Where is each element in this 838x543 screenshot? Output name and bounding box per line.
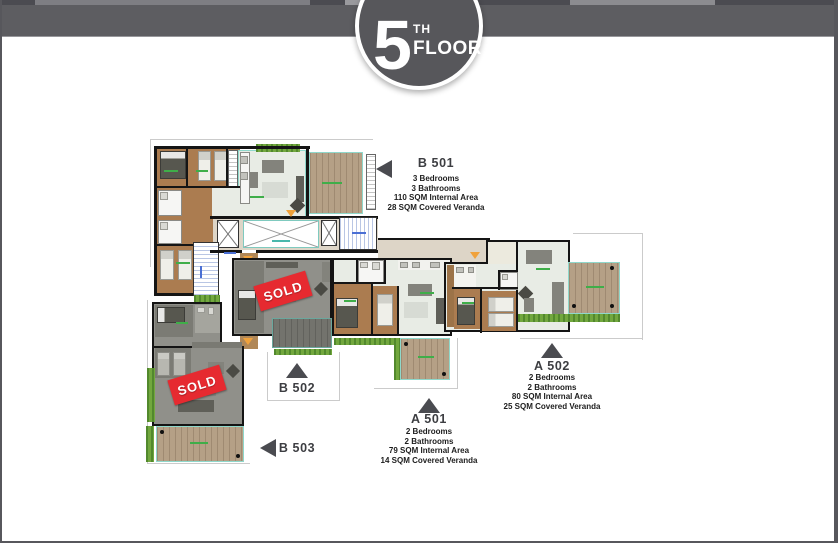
appliance	[456, 267, 464, 273]
unit-b502-veranda	[272, 318, 332, 348]
page-left-edge	[0, 0, 2, 543]
unit-label-a501: A 501	[389, 412, 469, 426]
unit-label-a502: A 502	[512, 359, 592, 373]
arrow-up-icon	[541, 343, 563, 358]
dining-table	[526, 250, 552, 264]
single-bed	[377, 294, 393, 326]
stair-label-mark	[352, 232, 366, 234]
detail-line: 110 SQM Internal Area	[376, 193, 496, 203]
appliance	[468, 267, 474, 273]
wall	[498, 270, 500, 290]
single-bed	[173, 352, 186, 376]
detail-line: 2 Bathrooms	[492, 383, 612, 393]
entry-door-marker	[286, 210, 296, 217]
floor-word: FLOOR	[413, 38, 482, 60]
parapet-outline	[374, 388, 458, 389]
entry-door-marker	[470, 252, 480, 259]
parapet-outline	[573, 233, 643, 234]
wall	[154, 146, 310, 149]
unit-details-a501: 2 Bedrooms 2 Bathrooms 79 SQM Internal A…	[369, 427, 489, 465]
dimension-mark	[176, 322, 188, 324]
unit-label-b502: B 502	[257, 381, 337, 395]
single-bed	[178, 250, 192, 280]
floorplan-page: 5 TH FLOOR	[0, 0, 838, 543]
kitchen-counter	[192, 342, 242, 348]
wall	[397, 286, 399, 334]
dimension-mark	[418, 356, 434, 358]
dimension-mark	[164, 170, 178, 172]
sink	[360, 262, 368, 268]
wall	[154, 146, 157, 296]
single-bed	[160, 250, 174, 280]
dimension-mark	[344, 300, 356, 302]
arrow-up-icon	[418, 398, 440, 413]
detail-line: 79 SQM Internal Area	[369, 446, 489, 456]
double-bed	[160, 151, 186, 179]
appliance	[240, 172, 248, 180]
void-label-mark	[272, 240, 290, 242]
planter-strip	[147, 368, 155, 422]
column-dot	[610, 304, 614, 308]
planter-strip	[518, 314, 620, 322]
toilet	[372, 262, 380, 270]
column-dot	[442, 372, 446, 376]
wardrobe	[228, 150, 238, 188]
detail-line: 25 SQM Covered Veranda	[492, 402, 612, 412]
double-bed	[157, 307, 185, 323]
coffee-table	[524, 298, 534, 312]
sideboard	[552, 282, 564, 316]
floor-ordinal: TH	[413, 22, 431, 36]
appliance	[430, 262, 440, 268]
dimension-mark	[322, 182, 342, 184]
planter-strip	[194, 295, 220, 302]
dimension-mark	[536, 268, 550, 270]
wall	[498, 270, 518, 272]
dimension-mark	[176, 262, 190, 264]
column-dot	[610, 266, 614, 270]
wall	[486, 240, 518, 242]
rug	[262, 182, 288, 198]
column-dot	[572, 304, 576, 308]
elevator	[217, 220, 239, 248]
sink	[197, 307, 205, 313]
parapet-outline	[642, 233, 643, 340]
unit-label-b503: B 503	[257, 441, 337, 455]
toilet	[160, 222, 168, 230]
dimension-mark	[196, 170, 208, 172]
parapet-outline	[520, 338, 643, 339]
unit-label-b501: B 501	[396, 156, 476, 170]
single-bed	[157, 352, 170, 376]
unit-b501-dining	[212, 188, 240, 218]
parapet-outline	[150, 139, 151, 267]
detail-line: 80 SQM Internal Area	[492, 392, 612, 402]
unit-details-b501: 3 Bedrooms 3 Bathrooms 110 SQM Internal …	[376, 174, 496, 212]
kitchen-cabinets	[447, 265, 454, 327]
dimension-mark	[420, 292, 434, 294]
detail-line: 2 Bedrooms	[492, 373, 612, 383]
planter-strip	[274, 349, 332, 355]
dimension-mark	[250, 196, 264, 198]
toilet	[502, 274, 508, 280]
elevator	[321, 220, 337, 246]
detail-line: 2 Bathrooms	[369, 437, 489, 447]
parapet-outline	[150, 139, 373, 140]
appliance	[240, 156, 248, 164]
wall	[306, 148, 309, 218]
wall	[378, 238, 490, 240]
detail-line: 28 SQM Covered Veranda	[376, 203, 496, 213]
detail-line: 3 Bathrooms	[376, 184, 496, 194]
wall	[384, 260, 386, 284]
kitchen-island	[250, 172, 258, 188]
detail-line: 2 Bedrooms	[369, 427, 489, 437]
page-right-edge	[834, 0, 838, 543]
detail-line: 3 Bedrooms	[376, 174, 496, 184]
wall	[226, 148, 228, 188]
wall	[371, 284, 373, 334]
double-bed	[238, 290, 256, 320]
arrow-up-icon	[286, 363, 308, 378]
dining-table	[262, 160, 284, 173]
dimension-mark	[586, 286, 604, 288]
rug	[404, 302, 428, 318]
stair-label-mark	[224, 252, 236, 254]
wall	[480, 289, 482, 333]
appliance	[412, 262, 420, 268]
single-bed	[488, 313, 514, 327]
unit-a502-entry	[488, 242, 516, 264]
double-bed	[336, 298, 358, 328]
detail-line: 14 SQM Covered Veranda	[369, 456, 489, 466]
planter-strip	[334, 338, 396, 345]
wall	[256, 250, 378, 253]
stair-label-mark	[200, 266, 202, 278]
single-bed	[198, 151, 211, 181]
parapet-outline	[457, 338, 458, 389]
toilet	[160, 192, 168, 200]
wall	[186, 148, 188, 188]
wall	[356, 260, 358, 284]
toilet	[208, 307, 214, 315]
sideboard	[322, 262, 330, 282]
floor-number: 5	[373, 10, 412, 80]
wall	[334, 282, 384, 284]
floor-badge: 5 TH FLOOR	[355, 0, 483, 90]
column-dot	[160, 430, 164, 434]
dimension-mark	[462, 302, 474, 304]
dining-table	[408, 284, 432, 296]
column-dot	[404, 342, 408, 346]
planter-strip	[146, 426, 154, 462]
column-dot	[236, 454, 240, 458]
unit-details-a502: 2 Bedrooms 2 Bathrooms 80 SQM Internal A…	[492, 373, 612, 411]
single-bed	[488, 297, 514, 312]
tv-unit	[266, 262, 298, 268]
wall	[452, 287, 518, 289]
dimension-mark	[190, 442, 208, 444]
appliance	[400, 262, 408, 268]
unit-b503-veranda	[156, 426, 244, 462]
void-shaft	[243, 220, 319, 248]
parapet-outline	[339, 352, 340, 401]
exterior-steps	[366, 154, 376, 210]
wall	[156, 186, 240, 188]
parapet-outline	[267, 400, 340, 401]
parapet-outline	[147, 463, 250, 464]
wall	[486, 240, 488, 264]
entry-door-marker	[243, 338, 253, 345]
